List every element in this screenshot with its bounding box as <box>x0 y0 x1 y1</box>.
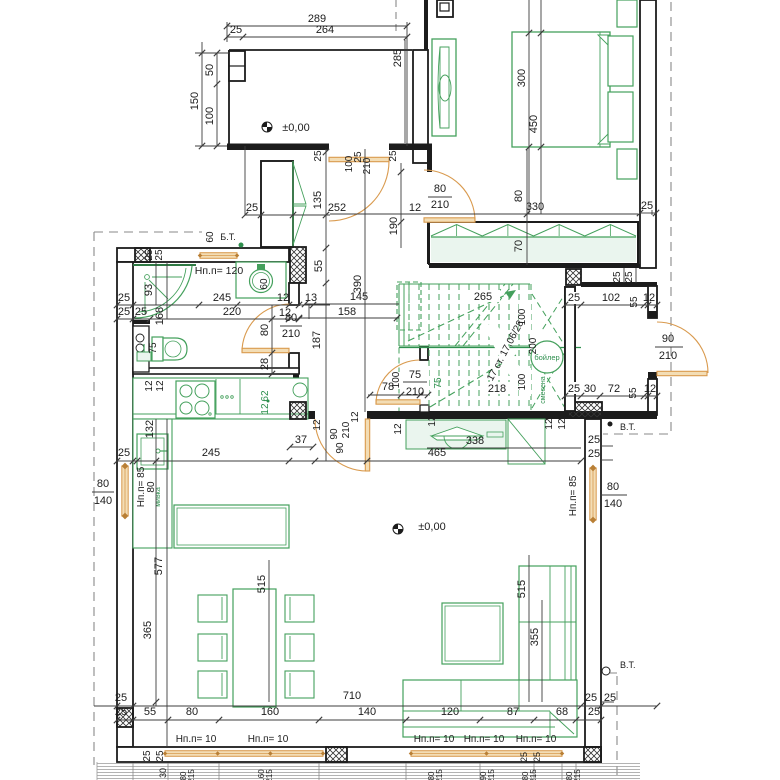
svg-text:710: 710 <box>343 690 361 702</box>
svg-text:264: 264 <box>316 24 334 36</box>
svg-text:330: 330 <box>526 201 544 213</box>
svg-text:100: 100 <box>391 371 402 388</box>
svg-text:Нп.п= 10: Нп.п= 10 <box>248 734 289 745</box>
svg-text:60: 60 <box>205 231 216 243</box>
svg-text:28: 28 <box>259 358 271 370</box>
svg-text:Б.Т.: Б.Т. <box>220 232 235 242</box>
svg-text:245: 245 <box>213 292 231 304</box>
svg-text:25: 25 <box>155 750 166 762</box>
svg-text:25: 25 <box>612 271 623 283</box>
svg-text:140: 140 <box>604 498 622 510</box>
svg-text:55: 55 <box>313 260 325 272</box>
svg-text:210: 210 <box>406 386 424 398</box>
svg-text:Нп.п= 10: Нп.п= 10 <box>516 734 557 745</box>
svg-text:12: 12 <box>557 418 568 430</box>
svg-text:285: 285 <box>392 49 404 67</box>
svg-text:215: 215 <box>435 769 444 780</box>
svg-text:140: 140 <box>94 495 112 507</box>
svg-text:55: 55 <box>629 296 640 308</box>
svg-text:102: 102 <box>602 292 620 304</box>
svg-text:25: 25 <box>118 306 130 318</box>
svg-text:100: 100 <box>517 373 528 390</box>
svg-text:75: 75 <box>148 342 159 354</box>
svg-text:160: 160 <box>261 706 279 718</box>
svg-text:25: 25 <box>568 383 580 395</box>
svg-text:338: 338 <box>466 435 484 447</box>
svg-text:75: 75 <box>433 377 444 389</box>
svg-text:210: 210 <box>659 350 677 362</box>
svg-text:12: 12 <box>644 383 656 395</box>
svg-text:30: 30 <box>584 383 596 395</box>
svg-text:220: 220 <box>223 306 241 318</box>
svg-text:25: 25 <box>585 692 597 704</box>
svg-text:132: 132 <box>144 420 156 438</box>
svg-text:68: 68 <box>556 706 568 718</box>
svg-text:25: 25 <box>388 150 399 162</box>
svg-text:25: 25 <box>588 434 600 446</box>
svg-text:25: 25 <box>568 292 580 304</box>
svg-text:25: 25 <box>313 150 324 162</box>
svg-text:25: 25 <box>588 448 600 460</box>
svg-text:62: 62 <box>260 390 271 402</box>
svg-text:215: 215 <box>187 769 196 780</box>
svg-text:300: 300 <box>516 69 528 87</box>
svg-text:12: 12 <box>279 307 291 319</box>
svg-text:25: 25 <box>230 24 242 36</box>
svg-text:25: 25 <box>118 292 130 304</box>
svg-text:30: 30 <box>158 768 168 778</box>
svg-text:355: 355 <box>529 628 541 646</box>
svg-text:60: 60 <box>259 278 270 290</box>
svg-text:390: 390 <box>352 275 364 293</box>
svg-text:190: 190 <box>388 217 400 235</box>
svg-text:12: 12 <box>144 380 155 392</box>
svg-text:50: 50 <box>204 64 216 76</box>
svg-text:смесена: смесена <box>540 376 547 403</box>
svg-text:140: 140 <box>358 706 376 718</box>
svg-text:515: 515 <box>256 575 268 593</box>
svg-text:150: 150 <box>189 92 201 110</box>
svg-text:90: 90 <box>662 333 674 345</box>
svg-text:158: 158 <box>338 306 356 318</box>
svg-text:25: 25 <box>135 306 147 318</box>
svg-text:187: 187 <box>311 331 323 349</box>
svg-text:80: 80 <box>513 190 525 202</box>
svg-text:Нп.п= 10: Нп.п= 10 <box>414 734 455 745</box>
svg-text:25: 25 <box>142 750 153 762</box>
svg-text:245: 245 <box>202 447 220 459</box>
svg-text:72: 72 <box>608 383 620 395</box>
svg-text:577: 577 <box>153 557 165 575</box>
svg-text:12: 12 <box>260 403 271 415</box>
svg-text:100: 100 <box>204 107 216 125</box>
svg-text:25: 25 <box>154 249 165 261</box>
svg-text:B.T.: B.T. <box>620 422 636 432</box>
svg-text:215: 215 <box>573 769 582 780</box>
svg-text:168: 168 <box>154 307 166 325</box>
svg-text:25: 25 <box>519 752 529 762</box>
svg-text:12: 12 <box>544 418 555 430</box>
svg-text:80: 80 <box>259 324 271 336</box>
svg-text:Нп.п= 85: Нп.п= 85 <box>568 475 579 516</box>
svg-text:55: 55 <box>144 706 156 718</box>
svg-text:25: 25 <box>246 202 258 214</box>
svg-text:37: 37 <box>295 434 307 446</box>
svg-text:25: 25 <box>588 706 600 718</box>
svg-text:25: 25 <box>532 752 542 762</box>
svg-text:135: 135 <box>312 191 324 209</box>
svg-text:210: 210 <box>341 421 352 438</box>
svg-text:75: 75 <box>409 369 421 381</box>
svg-text:25: 25 <box>604 692 616 704</box>
svg-text:87: 87 <box>507 706 519 718</box>
svg-text:12: 12 <box>643 292 655 304</box>
svg-text:252: 252 <box>328 202 346 214</box>
svg-text:Нп.п= 10: Нп.п= 10 <box>176 734 217 745</box>
svg-text:90: 90 <box>335 442 346 454</box>
svg-text:25: 25 <box>115 692 127 704</box>
svg-text:450: 450 <box>528 115 540 133</box>
svg-text:Нп.п= 120: Нп.п= 120 <box>195 265 244 277</box>
svg-text:93: 93 <box>143 284 155 296</box>
svg-text:365: 365 <box>142 621 154 639</box>
svg-text:12: 12 <box>312 419 323 431</box>
svg-text:210: 210 <box>282 328 300 340</box>
svg-text:80: 80 <box>607 481 619 493</box>
svg-text:90: 90 <box>329 428 340 440</box>
svg-text:210: 210 <box>431 199 449 211</box>
svg-text:±0,00: ±0,00 <box>282 122 309 134</box>
svg-text:120: 120 <box>441 706 459 718</box>
svg-text:25: 25 <box>118 447 130 459</box>
svg-text:12: 12 <box>427 415 438 427</box>
svg-text:80: 80 <box>186 706 198 718</box>
svg-text:215: 215 <box>529 769 538 780</box>
svg-text:25: 25 <box>115 706 127 718</box>
svg-text:12: 12 <box>155 380 166 392</box>
svg-text:Нп.п= 10: Нп.п= 10 <box>464 734 505 745</box>
svg-text:70: 70 <box>513 240 525 252</box>
svg-text:12: 12 <box>350 411 361 423</box>
svg-text:±0,00: ±0,00 <box>418 521 445 533</box>
svg-text:265: 265 <box>474 291 492 303</box>
svg-text:80: 80 <box>434 183 446 195</box>
svg-text:12: 12 <box>409 202 421 214</box>
svg-text:215: 215 <box>265 769 274 780</box>
svg-text:210: 210 <box>362 157 373 174</box>
svg-text:218: 218 <box>488 383 506 395</box>
svg-text:12: 12 <box>393 423 404 435</box>
svg-text:215: 215 <box>487 769 496 780</box>
svg-text:200: 200 <box>528 337 539 354</box>
svg-text:80: 80 <box>97 478 109 490</box>
svg-text:B.T.: B.T. <box>620 660 636 670</box>
svg-text:465: 465 <box>428 447 446 459</box>
svg-text:25: 25 <box>624 271 635 283</box>
svg-text:515: 515 <box>516 580 528 598</box>
svg-text:25: 25 <box>641 200 653 212</box>
svg-text:12: 12 <box>277 292 289 304</box>
svg-text:55: 55 <box>628 387 639 399</box>
